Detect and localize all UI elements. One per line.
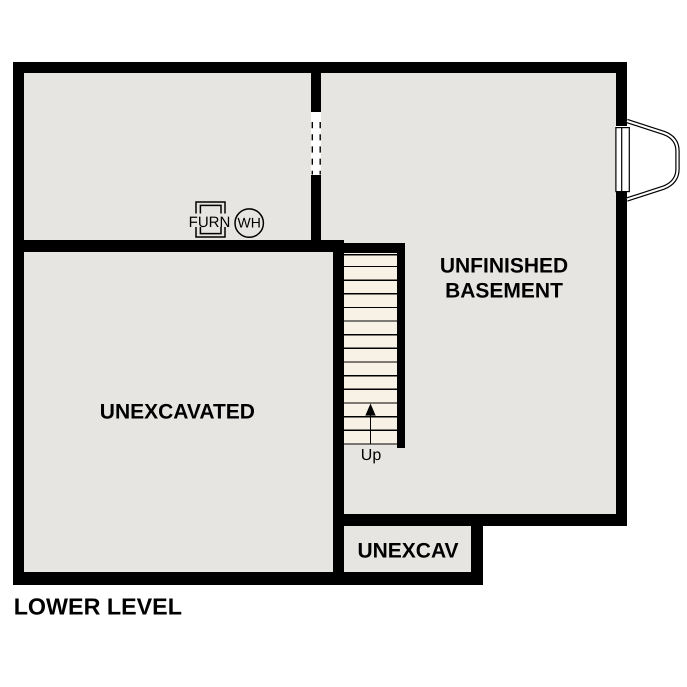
svg-text:LOWER LEVEL: LOWER LEVEL [14, 594, 182, 620]
svg-text:Up: Up [361, 447, 382, 464]
svg-text:BASEMENT: BASEMENT [445, 279, 563, 302]
svg-text:UNEXCAV: UNEXCAV [357, 539, 458, 562]
svg-text:UNEXCAVATED: UNEXCAVATED [100, 401, 255, 424]
svg-text:UNFINISHED: UNFINISHED [440, 255, 568, 278]
svg-text:FURN: FURN [189, 214, 231, 231]
svg-text:WH: WH [238, 214, 261, 230]
